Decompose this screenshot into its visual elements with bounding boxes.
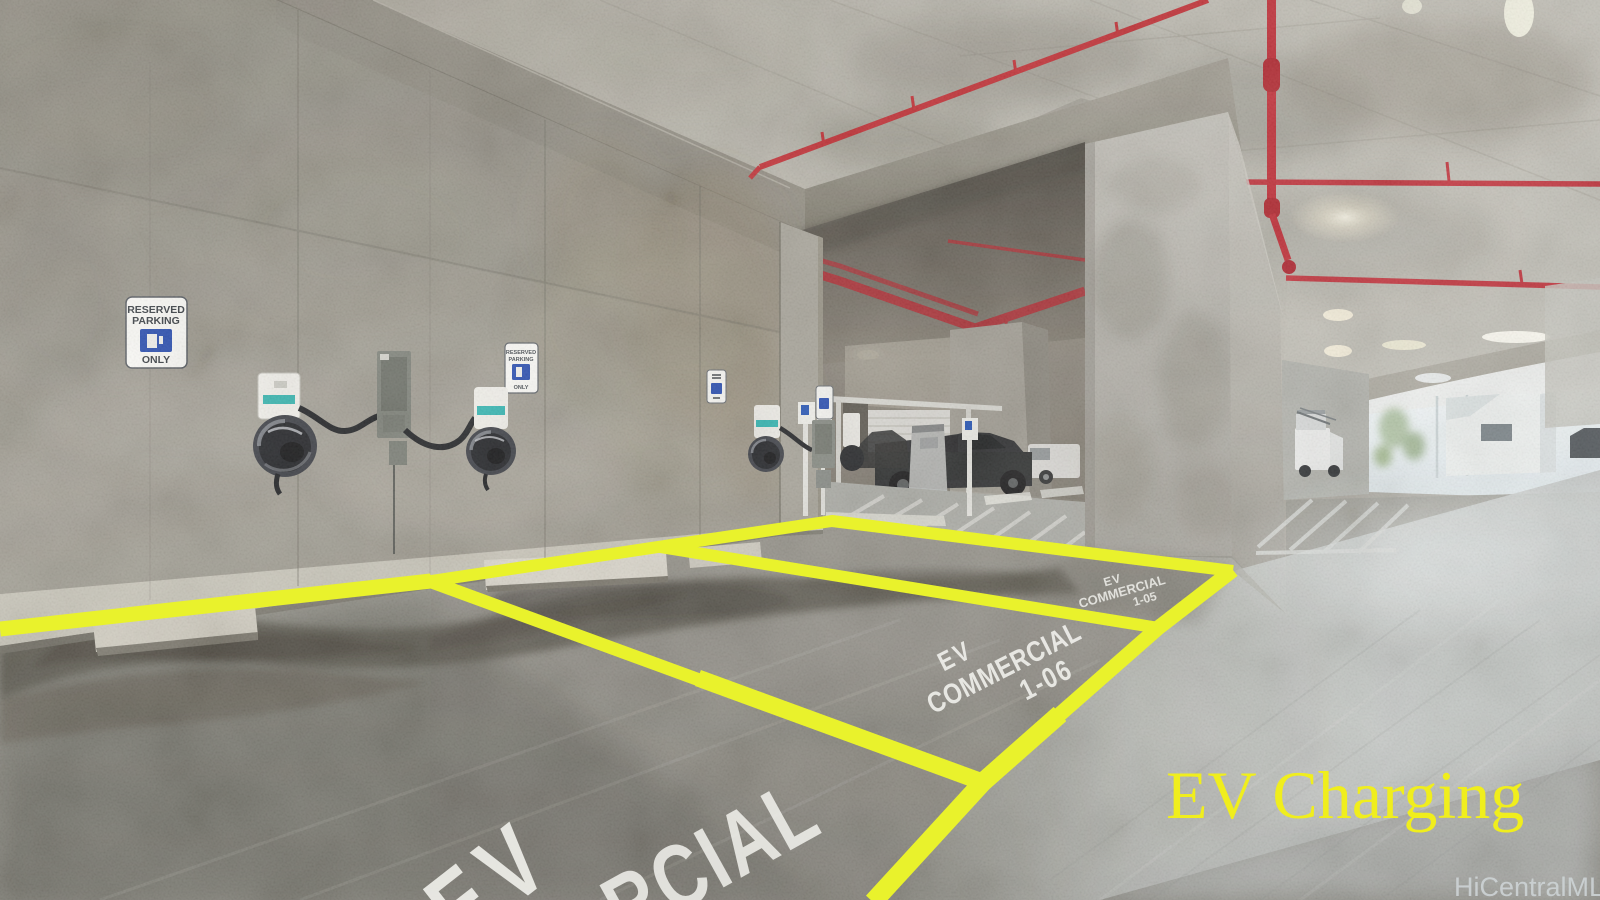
svg-text:HiCentralMLS: HiCentralMLS bbox=[1454, 872, 1600, 900]
svg-text:EV Charging: EV Charging bbox=[1166, 757, 1524, 833]
